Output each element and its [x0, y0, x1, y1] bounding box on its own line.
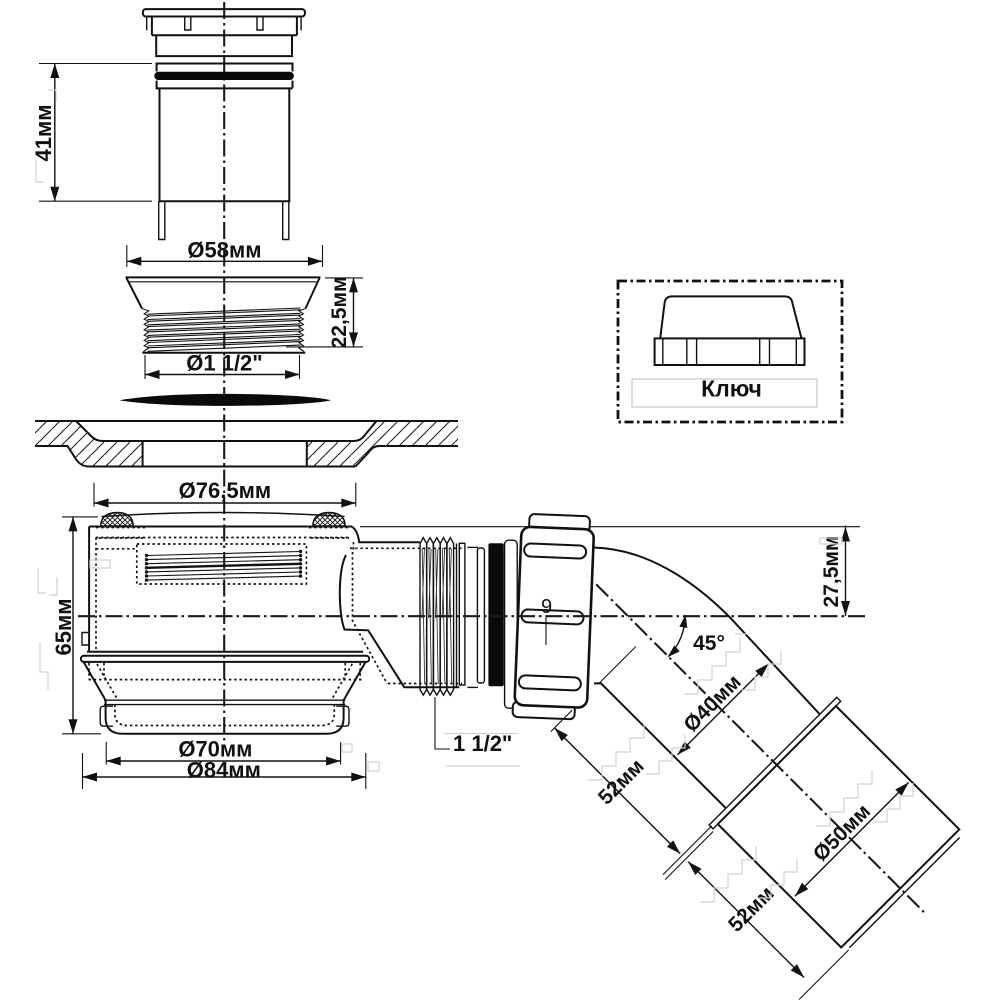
svg-text:Ø84мм: Ø84мм [187, 758, 261, 783]
svg-text:45°: 45° [693, 632, 725, 655]
svg-text:65мм: 65мм [51, 598, 76, 655]
svg-text:Ø58мм: Ø58мм [187, 238, 261, 263]
svg-text:Ключ: Ключ [701, 376, 762, 402]
svg-text:27,5мм: 27,5мм [820, 536, 843, 608]
svg-text:Ø1 1/2": Ø1 1/2" [186, 351, 262, 376]
svg-text:1 1/2": 1 1/2" [453, 731, 512, 756]
svg-text:41мм: 41мм [31, 104, 56, 161]
svg-text:9: 9 [541, 596, 552, 618]
svg-text:Ø76,5мм: Ø76,5мм [179, 478, 271, 503]
svg-text:22,5мм: 22,5мм [328, 276, 351, 348]
